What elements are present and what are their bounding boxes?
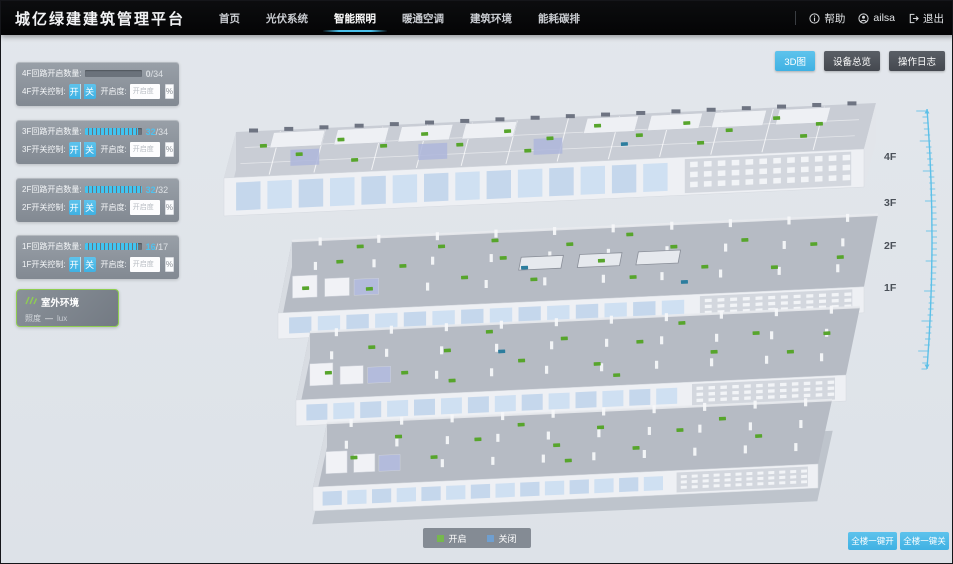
view-3d-button[interactable]: 3D图 xyxy=(775,51,815,71)
circuit-count-total: /32 xyxy=(156,185,169,195)
switch-control-label: 4F开关控制: xyxy=(22,86,66,97)
switch-control-label: 3F开关控制: xyxy=(22,144,66,155)
device-overview-button[interactable]: 设备总览 xyxy=(824,51,880,71)
help-label: 帮助 xyxy=(824,11,845,26)
nav-item-hvac[interactable]: 暖通空调 xyxy=(402,1,444,35)
building-3d-view[interactable] xyxy=(201,96,921,531)
circuit-count-label: 4F回路开启数量: xyxy=(22,68,82,79)
nav-divider xyxy=(795,11,796,25)
circuit-count-label: 3F回路开启数量: xyxy=(22,126,82,137)
outdoor-panel-title: 室外环境 xyxy=(41,295,79,309)
switch-off-button-1f[interactable]: 关 xyxy=(84,257,96,272)
dim-label: 开启度: xyxy=(101,144,127,155)
floor-panel-2f: 2F回路开启数量: 32/32 2F开关控制: 开 关 开启度: % xyxy=(16,178,179,222)
percent-unit: % xyxy=(165,257,174,272)
switch-on-button-2f[interactable]: 开 xyxy=(69,200,81,215)
switch-on-button-1f[interactable]: 开 xyxy=(69,257,81,272)
floor-label-1f: 1F xyxy=(884,282,896,294)
logout-icon xyxy=(908,13,919,24)
nav-item-building-env[interactable]: 建筑环境 xyxy=(470,1,512,35)
switch-control-label: 1F开关控制: xyxy=(22,259,66,270)
dim-input-3f[interactable] xyxy=(130,142,160,157)
legend-item-on: 开启 xyxy=(436,532,466,545)
circuit-progress-bar xyxy=(85,128,142,135)
illuminance-label: 照度 xyxy=(25,313,41,324)
circuit-count-total: /34 xyxy=(151,69,164,79)
percent-unit: % xyxy=(165,142,174,157)
circuit-count-label: 2F回路开启数量: xyxy=(22,184,82,195)
dim-input-1f[interactable] xyxy=(130,257,160,272)
floor-panel-1f: 1F回路开启数量: 16/17 1F开关控制: 开 关 开启度: % xyxy=(16,235,179,279)
logout-label: 退出 xyxy=(923,11,944,26)
nav-item-energy-carbon[interactable]: 能耗碳排 xyxy=(538,1,580,35)
percent-unit: % xyxy=(165,200,174,215)
nav-item-pv-system[interactable]: 光伏系统 xyxy=(266,1,308,35)
bulk-actions: 全楼一键开 全楼一键关 xyxy=(848,532,949,550)
floor-scale-ruler xyxy=(903,101,949,379)
user-name: ailsa xyxy=(873,12,895,24)
switch-off-button-3f[interactable]: 关 xyxy=(84,142,96,157)
circuit-progress-bar xyxy=(85,70,142,77)
illuminance-unit: lux xyxy=(57,314,67,323)
illuminance-icon xyxy=(25,296,37,308)
circuit-progress-bar xyxy=(85,243,142,250)
dim-input-2f[interactable] xyxy=(130,200,160,215)
help-button[interactable]: 帮助 xyxy=(809,11,845,26)
circuit-count-value: 32 xyxy=(146,127,156,137)
user-avatar-icon xyxy=(858,13,869,24)
legend-on-swatch xyxy=(436,535,443,542)
help-icon xyxy=(809,13,820,24)
switch-control-label: 2F开关控制: xyxy=(22,202,66,213)
percent-unit: % xyxy=(165,84,174,99)
dim-label: 开启度: xyxy=(101,202,127,213)
dim-label: 开启度: xyxy=(101,259,127,270)
user-menu[interactable]: ailsa xyxy=(858,12,895,24)
switch-on-button-3f[interactable]: 开 xyxy=(69,142,81,157)
status-legend: 开启 关闭 xyxy=(422,528,530,548)
all-off-button[interactable]: 全楼一键关 xyxy=(900,532,949,550)
navbar-right: 帮助 ailsa 退出 xyxy=(795,11,944,26)
circuit-progress-bar xyxy=(85,186,142,193)
smart-lighting-dashboard: 城亿绿建建筑管理平台 首页 光伏系统 智能照明 暖通空调 建筑环境 能耗碳排 帮… xyxy=(0,0,953,564)
floor-panel-4f: 4F回路开启数量: 0/34 4F开关控制: 开 关 开启度: % xyxy=(16,62,179,106)
top-navbar: 城亿绿建建筑管理平台 首页 光伏系统 智能照明 暖通空调 建筑环境 能耗碳排 帮… xyxy=(1,1,953,35)
floor-label-2f: 2F xyxy=(884,240,896,252)
nav-item-smart-lighting[interactable]: 智能照明 xyxy=(334,1,376,35)
circuit-count-value: 16 xyxy=(146,242,156,252)
legend-off-swatch xyxy=(487,535,494,542)
all-on-button[interactable]: 全楼一键开 xyxy=(848,532,897,550)
circuit-count-total: /17 xyxy=(156,242,169,252)
outdoor-env-panel: 室外环境 照度 — lux xyxy=(16,289,119,327)
switch-on-button-4f[interactable]: 开 xyxy=(69,84,81,99)
legend-off-label: 关闭 xyxy=(499,532,517,545)
logout-button[interactable]: 退出 xyxy=(908,11,944,26)
operation-log-button[interactable]: 操作日志 xyxy=(889,51,945,71)
circuit-count-label: 1F回路开启数量: xyxy=(22,241,82,252)
floor-label-4f: 4F xyxy=(884,151,896,163)
dim-label: 开启度: xyxy=(101,86,127,97)
legend-on-label: 开启 xyxy=(448,532,466,545)
switch-off-button-2f[interactable]: 关 xyxy=(84,200,96,215)
app-title: 城亿绿建建筑管理平台 xyxy=(15,8,185,29)
circuit-count-total: /34 xyxy=(156,127,169,137)
main-nav: 首页 光伏系统 智能照明 暖通空调 建筑环境 能耗碳排 xyxy=(219,1,580,35)
view-toolbar: 3D图 设备总览 操作日志 xyxy=(775,51,945,71)
illuminance-value: — xyxy=(45,314,53,323)
switch-off-button-4f[interactable]: 关 xyxy=(84,84,96,99)
floor-panel-3f: 3F回路开启数量: 32/34 3F开关控制: 开 关 开启度: % xyxy=(16,120,179,164)
dim-input-4f[interactable] xyxy=(130,84,160,99)
nav-item-home[interactable]: 首页 xyxy=(219,1,240,35)
circuit-count-value: 32 xyxy=(146,185,156,195)
legend-item-off: 关闭 xyxy=(487,532,517,545)
floor-label-3f: 3F xyxy=(884,197,896,209)
